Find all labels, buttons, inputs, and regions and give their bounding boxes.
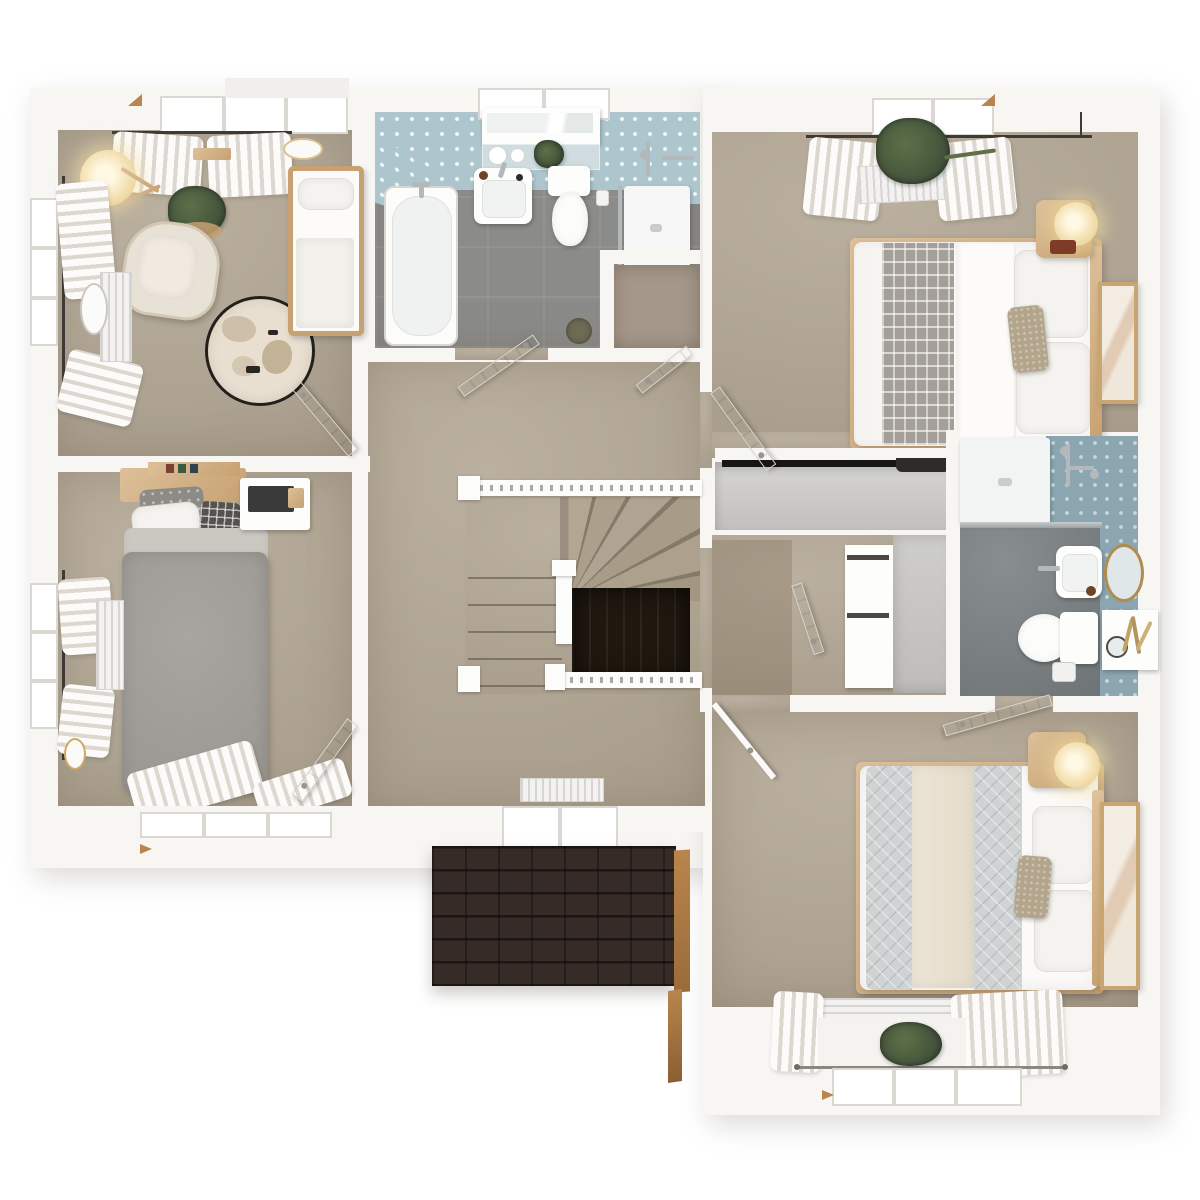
roof-fascia-lower (668, 989, 682, 1083)
towel-roll (510, 148, 525, 163)
bed2-window (832, 1068, 1022, 1106)
window-mullion (266, 814, 270, 836)
balustrade-spindles (470, 485, 694, 491)
shelf-rail (847, 555, 889, 560)
dormer-roof (225, 78, 349, 98)
windowsill-plant (880, 1022, 942, 1066)
hall-shelf-unit (845, 545, 893, 688)
bed2-quilt-right (974, 766, 1022, 990)
shower-head (640, 150, 650, 160)
shelf-rail (847, 613, 889, 618)
bed2-cushion (1013, 855, 1052, 920)
ensuite-basin-tap (1038, 566, 1060, 571)
airing-cupboard-wall-w (600, 252, 614, 348)
master-bed-runner (882, 243, 954, 445)
mirror-cabinet (482, 108, 600, 144)
airing-cupboard-wall-n (600, 250, 700, 264)
floor-plan (0, 0, 1200, 1200)
standing-mirror (80, 283, 108, 335)
window-mullion (222, 98, 226, 132)
curtain-rail-finial (1062, 1064, 1068, 1070)
door-handle (300, 782, 308, 790)
curtain-rail-end (1080, 112, 1082, 138)
balustrade-spindles (560, 677, 694, 683)
bathroom-bin (566, 318, 592, 344)
bathtub (384, 186, 458, 346)
master-artwork (1098, 282, 1138, 404)
curtains (206, 132, 293, 198)
window-mullion (32, 630, 56, 634)
stairs-winders (560, 497, 700, 601)
door-handle (522, 341, 530, 349)
wall-landing-east-1 (700, 348, 712, 392)
window-mullion (892, 1070, 896, 1104)
shower-rail (662, 156, 694, 160)
stair-center-post-cap (552, 560, 576, 576)
master-door-threshold (700, 392, 712, 468)
door-handle (959, 721, 966, 728)
soap-cup (1086, 586, 1096, 596)
newel-post (545, 664, 565, 690)
porch-roof (432, 846, 676, 986)
newel-post (458, 666, 480, 692)
door-handle (757, 451, 765, 459)
ensuite-oval-mirror (1104, 544, 1144, 602)
basin-bowl (482, 180, 526, 218)
bedroom2-door-threshold (712, 695, 790, 712)
shelf-books (178, 464, 186, 473)
ensuite-shelf-unit (1102, 610, 1158, 670)
curtains (770, 991, 824, 1074)
desk-mousepad (288, 488, 304, 508)
curtain-rail-finial (794, 1064, 800, 1070)
bed4-window-outer (140, 812, 332, 838)
bed2-quilt-left (866, 766, 912, 990)
cot-blanket (296, 238, 354, 328)
rug-mark (246, 366, 260, 373)
landing-radiator (520, 778, 604, 802)
window-mullion (954, 1070, 958, 1104)
cot-pillow (298, 178, 354, 210)
ensuite-glass-screen (960, 522, 1102, 528)
basin-accessory (516, 174, 523, 181)
master-cushion (1007, 304, 1050, 373)
wall-clock (64, 738, 86, 770)
hallway-floor-shade (712, 540, 792, 695)
soap-cup (479, 171, 488, 180)
rug-mark (268, 330, 278, 335)
bathtub-basin (392, 196, 452, 336)
window-mullion (558, 808, 562, 848)
bath-tap-spout (419, 186, 424, 198)
stairwell-void (572, 588, 690, 680)
armchair-cushion (134, 232, 200, 301)
hallway-opening (700, 548, 712, 688)
wardrobe-interior (715, 462, 955, 530)
window-mullion (284, 98, 288, 132)
bed2-duvet-center (912, 766, 974, 988)
toilet-bowl (552, 192, 588, 246)
window-mullion (32, 246, 56, 250)
bed2-table-lamp (1054, 742, 1100, 788)
door-handle (299, 391, 307, 399)
bed4-left-window (30, 583, 58, 729)
curtain-rail (806, 135, 1092, 138)
stair-center-post (556, 568, 572, 644)
mirror-glass (487, 113, 593, 133)
shower-drain (998, 478, 1012, 486)
toilet-brush (596, 190, 609, 206)
ensuite-shower-tray (960, 438, 1050, 524)
landing-window (502, 806, 618, 850)
shelf-books (190, 464, 198, 473)
shelf-plant (534, 140, 564, 168)
balustrade-bottom (552, 672, 702, 688)
ensuite-shower-arm (1066, 466, 1094, 470)
nursery-left-window (30, 198, 58, 346)
rug-map-patch (222, 316, 256, 342)
door-handle (643, 377, 651, 385)
nightstand-tray (1050, 240, 1076, 254)
wall-shelf (193, 148, 231, 160)
hanging-plant (876, 118, 950, 184)
ensuite-shower-head (1060, 446, 1070, 456)
master-sheet-fold (956, 242, 1014, 446)
wall-ensuite-west (946, 430, 960, 700)
balustrade-top (462, 480, 702, 496)
airing-cupboard-floor (612, 265, 700, 348)
window-mullion (32, 296, 56, 300)
window-mullion (202, 814, 206, 836)
bed4-radiator (96, 600, 124, 690)
ensuite-toilet-cistern (1060, 612, 1098, 664)
shelf-books (166, 464, 174, 473)
ceiling-light (283, 138, 323, 160)
roof-fascia (674, 849, 690, 992)
window-mullion (32, 679, 56, 683)
door-handle (810, 638, 818, 646)
shower-drain (650, 224, 662, 232)
nursery-top-window (160, 96, 348, 134)
ensuite-valve (1090, 470, 1099, 479)
toilet-roll-holder (1052, 662, 1076, 682)
newel-post (458, 476, 480, 500)
bed2-artwork (1100, 802, 1140, 990)
